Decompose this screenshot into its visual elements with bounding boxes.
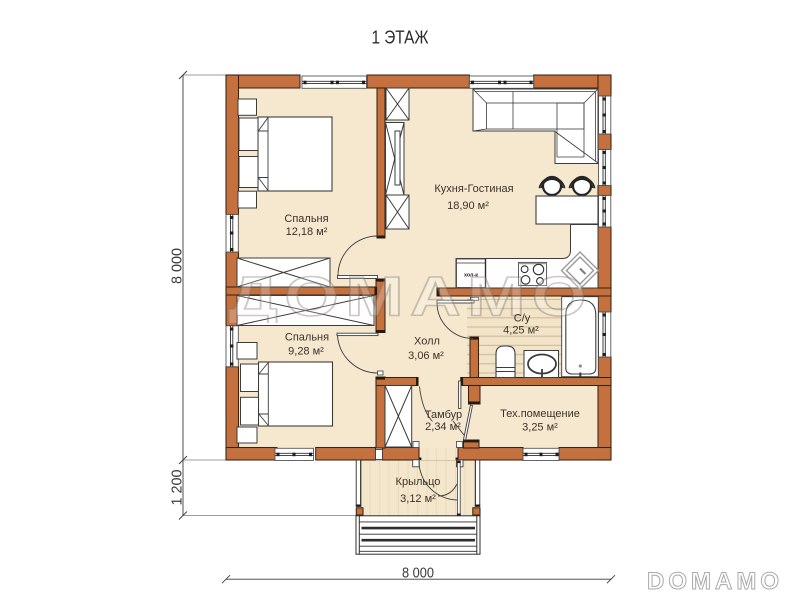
svg-text:18,90 м²: 18,90 м²: [447, 200, 489, 212]
svg-text:2,34 м²: 2,34 м²: [425, 421, 461, 433]
svg-text:3,06 м²: 3,06 м²: [408, 350, 444, 362]
svg-text:1 ЭТАЖ: 1 ЭТАЖ: [372, 28, 429, 48]
svg-text:Тамбур: Тамбур: [425, 409, 462, 421]
svg-text:С/у: С/у: [514, 313, 531, 325]
svg-text:Тех.помещение: Тех.помещение: [500, 408, 580, 420]
svg-text:8 000: 8 000: [402, 566, 434, 582]
svg-text:Кухня-Гостиная: Кухня-Гостиная: [434, 183, 513, 195]
svg-text:3,12 м²: 3,12 м²: [400, 493, 436, 505]
svg-text:Холл: Холл: [414, 336, 440, 348]
svg-text:4,25 м²: 4,25 м²: [503, 325, 539, 337]
svg-text:Крыльцо: Крыльцо: [396, 476, 441, 488]
svg-text:3,25 м²: 3,25 м²: [522, 422, 558, 434]
svg-text:9,28 м²: 9,28 м²: [288, 346, 324, 358]
svg-text:1 200: 1 200: [170, 469, 186, 505]
svg-text:12,18 м²: 12,18 м²: [286, 226, 328, 238]
svg-text:Спальня: Спальня: [285, 332, 329, 344]
svg-text:DOMAMO: DOMAMO: [647, 568, 783, 595]
svg-text:Спальня: Спальня: [284, 213, 328, 225]
svg-text:ДОМАМО: ДОМАМО: [228, 266, 593, 328]
svg-text:8 000: 8 000: [170, 248, 186, 284]
